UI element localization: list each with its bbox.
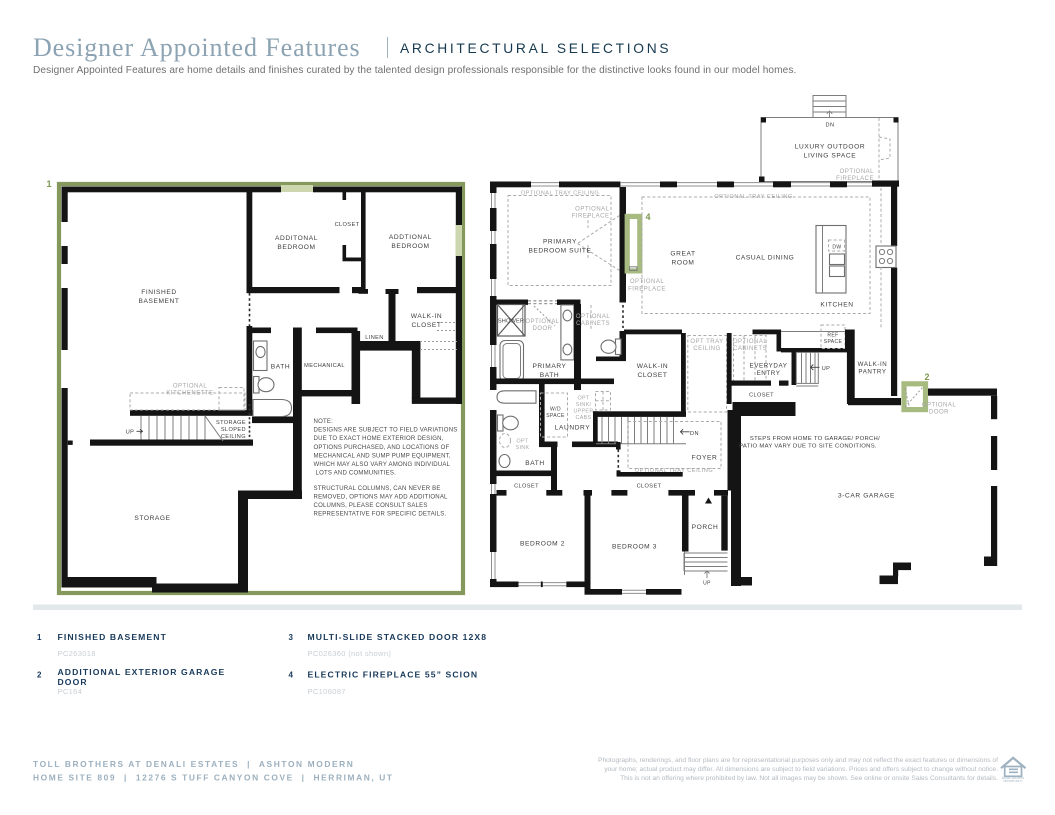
svg-text:DUE TO EXACT HOME EXTERIOR DES: DUE TO EXACT HOME EXTERIOR DESIGN, bbox=[314, 436, 444, 442]
svg-text:OPTIONAL: OPTIONAL bbox=[525, 319, 560, 325]
svg-text:LOTS AND COMMUNITIES.: LOTS AND COMMUNITIES. bbox=[316, 471, 397, 477]
svg-text:your home; actual product may: your home; actual product may differ. Al… bbox=[604, 766, 998, 773]
svg-text:UPPER: UPPER bbox=[573, 409, 593, 415]
svg-text:LAUNDRY: LAUNDRY bbox=[555, 425, 591, 432]
svg-text:HOME SITE 809 | 12276 S TUFF: HOME SITE 809 | 12276 S TUFF CANYON COVE… bbox=[33, 773, 394, 783]
svg-text:3: 3 bbox=[289, 633, 294, 642]
svg-text:DN: DN bbox=[690, 431, 699, 437]
svg-text:W/D: W/D bbox=[550, 407, 561, 413]
svg-text:REPRESENTATIVE FOR SPECIFIC DE: REPRESENTATIVE FOR SPECIFIC DETAILS. bbox=[314, 512, 447, 518]
svg-text:CABS: CABS bbox=[576, 415, 592, 421]
svg-text:BEDROOM 2: BEDROOM 2 bbox=[520, 541, 565, 548]
svg-text:SPACE: SPACE bbox=[824, 339, 843, 345]
svg-text:SLOPED: SLOPED bbox=[221, 427, 246, 433]
svg-text:DESIGNS ARE SUBJECT TO FIELD V: DESIGNS ARE SUBJECT TO FIELD VARIATIONS bbox=[314, 428, 458, 434]
svg-text:BATH: BATH bbox=[540, 372, 560, 379]
svg-text:ADDITONAL: ADDITONAL bbox=[275, 235, 318, 242]
svg-text:CASUAL DINING: CASUAL DINING bbox=[736, 255, 795, 262]
svg-text:CABINETS: CABINETS bbox=[576, 321, 610, 327]
svg-text:BEDROOM SUITE: BEDROOM SUITE bbox=[528, 248, 591, 255]
svg-text:STEPS FROM HOME TO GARAGE/ POR: STEPS FROM HOME TO GARAGE/ PORCH/ bbox=[750, 436, 880, 442]
svg-text:BEDROOM: BEDROOM bbox=[391, 243, 429, 250]
svg-text:BATH: BATH bbox=[271, 364, 291, 371]
svg-text:CLOSET: CLOSET bbox=[637, 484, 662, 490]
svg-text:MULTI-SLIDE STACKED DOOR 12X8: MULTI-SLIDE STACKED DOOR 12X8 bbox=[308, 632, 488, 642]
svg-text:PC106087: PC106087 bbox=[308, 687, 346, 696]
svg-text:ROOM: ROOM bbox=[672, 260, 695, 267]
svg-text:OPT: OPT bbox=[517, 439, 529, 445]
svg-text:2: 2 bbox=[37, 671, 42, 680]
svg-text:OPT TRAY: OPT TRAY bbox=[690, 339, 723, 345]
svg-text:ENTRY: ENTRY bbox=[757, 370, 781, 377]
svg-text:BATH: BATH bbox=[525, 460, 545, 467]
svg-text:1: 1 bbox=[46, 179, 51, 189]
svg-text:FINISHED: FINISHED bbox=[141, 289, 177, 296]
svg-text:KITCHEN: KITCHEN bbox=[820, 302, 853, 309]
svg-text:PC026360 (not shown): PC026360 (not shown) bbox=[308, 649, 392, 658]
svg-text:COLUMNS, PLEASE CONSULT SALES: COLUMNS, PLEASE CONSULT SALES bbox=[314, 503, 428, 509]
svg-text:MECHANICAL AND SUMP PUMP EQUIP: MECHANICAL AND SUMP PUMP EQUIPMENT, bbox=[314, 453, 451, 459]
svg-text:REMOVED, OPTIONS MAY ADD ADDIT: REMOVED, OPTIONS MAY ADD ADDITIONAL bbox=[314, 494, 449, 500]
svg-text:STRUCTURAL COLUMNS, CAN NEVER: STRUCTURAL COLUMNS, CAN NEVER BE bbox=[314, 486, 441, 492]
svg-text:CLOSET: CLOSET bbox=[335, 222, 360, 228]
svg-text:LINEN: LINEN bbox=[365, 335, 383, 341]
svg-text:4: 4 bbox=[289, 671, 294, 680]
svg-text:CLOSET: CLOSET bbox=[638, 372, 668, 379]
svg-text:OPTIONAL TRAY CEILING: OPTIONAL TRAY CEILING bbox=[521, 191, 599, 197]
svg-text:OPTIONAL: OPTIONAL bbox=[922, 403, 957, 409]
svg-text:OPTIONAL TRAY CEILING: OPTIONAL TRAY CEILING bbox=[635, 468, 713, 474]
svg-text:CLOSET: CLOSET bbox=[412, 322, 442, 329]
svg-text:WALK-IN: WALK-IN bbox=[637, 363, 668, 370]
svg-text:OPTIONAL: OPTIONAL bbox=[576, 314, 611, 320]
svg-text:LUXURY OUTDOOR: LUXURY OUTDOOR bbox=[795, 144, 865, 151]
svg-text:DN: DN bbox=[826, 123, 835, 129]
svg-text:PATIO MAY VARY DUE TO SITE CON: PATIO MAY VARY DUE TO SITE CONDITIONS. bbox=[739, 444, 877, 450]
svg-text:DOOR: DOOR bbox=[929, 410, 949, 416]
svg-text:This is not an offering where: This is not an offering where prohibited… bbox=[620, 775, 998, 782]
svg-text:PRIMARY: PRIMARY bbox=[532, 363, 566, 370]
svg-text:PC164: PC164 bbox=[58, 687, 83, 696]
svg-text:Photographs, renderings, and f: Photographs, renderings, and floor plans… bbox=[598, 757, 998, 764]
svg-text:REF: REF bbox=[827, 333, 838, 339]
svg-text:OPTIONAL: OPTIONAL bbox=[733, 339, 768, 345]
svg-text:CABINETS: CABINETS bbox=[733, 346, 767, 352]
svg-text:NOTE:: NOTE: bbox=[314, 419, 334, 425]
svg-text:GREAT: GREAT bbox=[670, 251, 695, 258]
svg-text:PORCH: PORCH bbox=[692, 524, 719, 531]
svg-text:DW: DW bbox=[832, 245, 841, 251]
svg-text:ELECTRIC FIREPLACE 55” SCION: ELECTRIC FIREPLACE 55” SCION bbox=[308, 670, 479, 680]
svg-text:FIREPLACE: FIREPLACE bbox=[572, 214, 610, 220]
svg-text:3-CAR GARAGE: 3-CAR GARAGE bbox=[838, 493, 895, 500]
svg-text:DOOR: DOOR bbox=[58, 677, 88, 687]
svg-text:OPTIONS PURCHASED, AND LOCATIO: OPTIONS PURCHASED, AND LOCATIONS OF bbox=[314, 445, 450, 451]
svg-text:4: 4 bbox=[645, 212, 650, 222]
svg-text:PRIMARY: PRIMARY bbox=[543, 239, 577, 246]
svg-text:TOLL BROTHERS AT DENALI ESTATE: TOLL BROTHERS AT DENALI ESTATES | ASHTON… bbox=[33, 759, 354, 769]
svg-text:SPACE: SPACE bbox=[546, 413, 565, 419]
svg-text:FIREPLACE: FIREPLACE bbox=[628, 287, 666, 293]
svg-text:OPTIONAL: OPTIONAL bbox=[575, 207, 610, 213]
svg-text:UP: UP bbox=[822, 366, 831, 372]
svg-text:OPTIONAL TRAY CEILING: OPTIONAL TRAY CEILING bbox=[714, 194, 792, 200]
svg-text:CEILING: CEILING bbox=[693, 346, 721, 352]
svg-text:FOYER: FOYER bbox=[692, 455, 718, 462]
svg-text:SINK/: SINK/ bbox=[576, 402, 592, 408]
svg-text:SHOWER: SHOWER bbox=[498, 319, 524, 325]
svg-text:WALK-IN: WALK-IN bbox=[411, 313, 442, 320]
svg-text:2: 2 bbox=[924, 372, 929, 382]
svg-text:STORAGE: STORAGE bbox=[134, 515, 170, 522]
svg-text:FINISHED BASEMENT: FINISHED BASEMENT bbox=[58, 632, 167, 642]
svg-text:FIREPLACE: FIREPLACE bbox=[836, 176, 874, 182]
svg-text:STORAGE: STORAGE bbox=[216, 420, 246, 426]
svg-text:CLOSET: CLOSET bbox=[749, 393, 774, 399]
svg-text:PC263018: PC263018 bbox=[58, 649, 96, 658]
svg-text:OPTIONAL: OPTIONAL bbox=[840, 169, 875, 175]
svg-text:EVERYDAY: EVERYDAY bbox=[750, 363, 788, 370]
svg-text:ADDITIONAL EXTERIOR GARAGE: ADDITIONAL EXTERIOR GARAGE bbox=[58, 667, 226, 677]
svg-text:ADDTIONAL: ADDTIONAL bbox=[389, 234, 432, 241]
svg-text:BASEMENT: BASEMENT bbox=[138, 298, 179, 305]
svg-text:KITCHENETTE: KITCHENETTE bbox=[166, 391, 213, 397]
svg-text:CEILING: CEILING bbox=[221, 434, 246, 440]
svg-text:DOOR: DOOR bbox=[533, 326, 553, 332]
svg-text:WHICH MAY ALSO VARY AMONG INDI: WHICH MAY ALSO VARY AMONG INDIVIDUAL bbox=[314, 462, 451, 468]
svg-text:PANTRY: PANTRY bbox=[858, 369, 886, 376]
svg-text:OPPORTUNITY: OPPORTUNITY bbox=[1003, 779, 1023, 783]
svg-text:MECHANICAL: MECHANICAL bbox=[304, 363, 345, 369]
svg-text:LIVING SPACE: LIVING SPACE bbox=[804, 153, 857, 160]
svg-text:OPTIONAL: OPTIONAL bbox=[173, 384, 208, 390]
svg-text:SINK: SINK bbox=[516, 445, 530, 451]
svg-text:CLOSET: CLOSET bbox=[514, 484, 539, 490]
svg-text:1: 1 bbox=[37, 633, 42, 642]
svg-text:UP: UP bbox=[703, 581, 711, 587]
svg-text:WALK-IN: WALK-IN bbox=[858, 361, 888, 368]
svg-text:OPT: OPT bbox=[578, 396, 590, 402]
svg-text:BEDROOM 3: BEDROOM 3 bbox=[612, 544, 657, 551]
svg-text:BEDROOM: BEDROOM bbox=[277, 244, 315, 251]
svg-text:UP: UP bbox=[126, 430, 135, 436]
svg-text:OPTIONAL: OPTIONAL bbox=[630, 279, 665, 285]
